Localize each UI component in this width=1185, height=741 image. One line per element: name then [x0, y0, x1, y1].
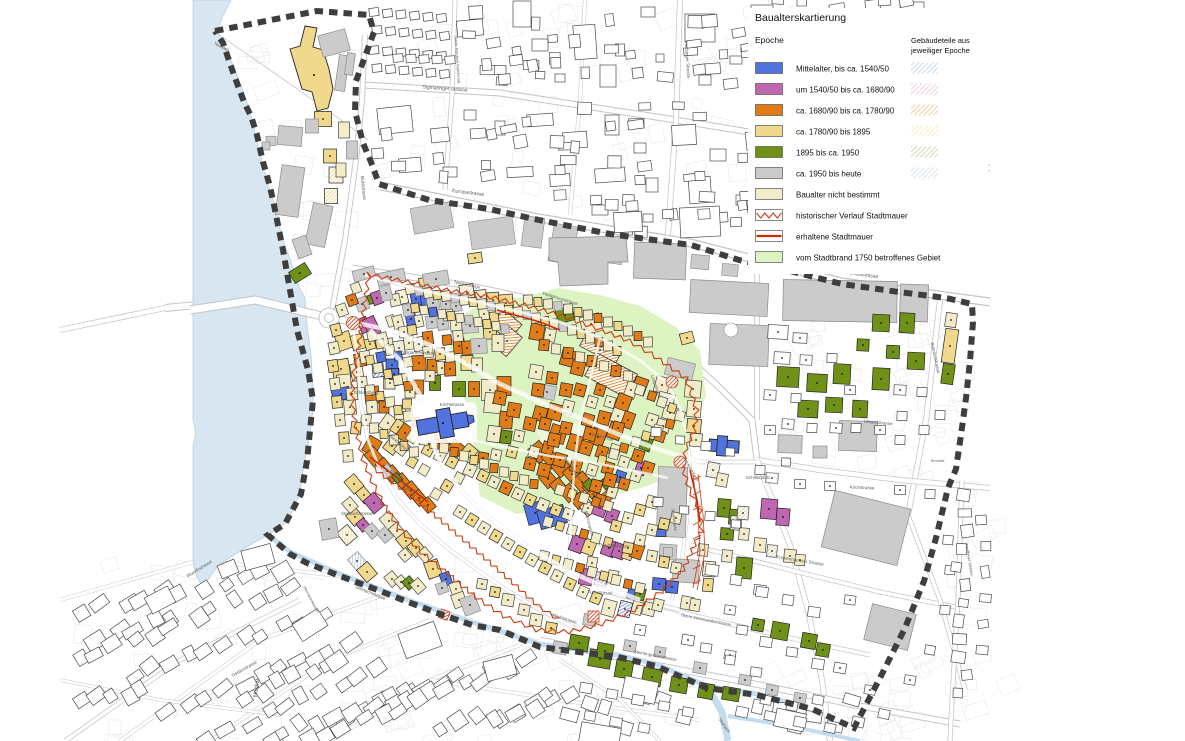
svg-text:ca. 1780/90 bis 1895: ca. 1780/90 bis 1895 — [796, 128, 871, 137]
svg-text:Steinachstrasse: Steinachstrasse — [341, 511, 374, 516]
svg-text:erhaltene Stadtmauer: erhaltene Stadtmauer — [796, 233, 873, 242]
svg-text:ca. 1680/90 bis ca. 1780/90: ca. 1680/90 bis ca. 1780/90 — [796, 107, 895, 116]
svg-text:Schlossberg: Schlossberg — [354, 390, 379, 395]
svg-text:Schillerplatz: Schillerplatz — [746, 475, 771, 480]
svg-text:Baualter nicht bestimmt: Baualter nicht bestimmt — [796, 191, 880, 200]
svg-text:Mittelalter, bis ca. 1540/50: Mittelalter, bis ca. 1540/50 — [796, 65, 889, 74]
svg-text:Baualterskartierung: Baualterskartierung — [755, 12, 846, 24]
svg-text:1895 bis ca. 1950: 1895 bis ca. 1950 — [796, 149, 860, 158]
svg-text:Kirchstrasse: Kirchstrasse — [850, 485, 875, 491]
svg-text:Kirchstr.: Kirchstr. — [931, 458, 945, 463]
svg-text:um 1540/50 bis ca. 1680/90: um 1540/50 bis ca. 1680/90 — [796, 86, 895, 95]
svg-text:Gebäudeteile aus: Gebäudeteile aus — [911, 36, 970, 45]
svg-text:historischer Verlauf Stadtmaue: historischer Verlauf Stadtmauer — [796, 212, 908, 221]
svg-text:Epoche: Epoche — [755, 35, 784, 45]
svg-text:jeweiliger Epoche: jeweiliger Epoche — [910, 46, 970, 55]
svg-text:vom Stadtbrand 1750 betroffene: vom Stadtbrand 1750 betroffenes Gebiet — [796, 254, 941, 263]
svg-text:ca. 1950 bis heute: ca. 1950 bis heute — [796, 170, 862, 179]
svg-text:Kirchstrasse: Kirchstrasse — [440, 402, 465, 407]
